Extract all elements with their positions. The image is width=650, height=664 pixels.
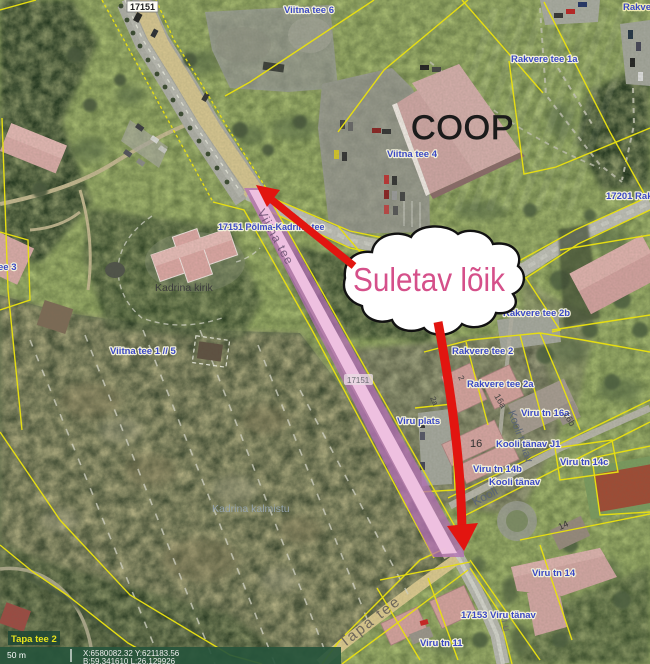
svg-text:Tapa tee 2: Tapa tee 2 <box>11 634 57 645</box>
svg-text:Viru tn 14b: Viru tn 14b <box>473 464 522 475</box>
svg-text:Viru tn 14c: Viru tn 14c <box>560 457 608 468</box>
svg-text:Viru tn 14: Viru tn 14 <box>532 568 576 579</box>
svg-text:Rakvere t: Rakvere t <box>623 2 650 13</box>
svg-text:Kadrina kalmistu: Kadrina kalmistu <box>212 503 290 515</box>
svg-text:Viitna tee 4: Viitna tee 4 <box>387 149 438 160</box>
svg-text:Viru tn 11: Viru tn 11 <box>420 638 463 649</box>
svg-text:B:59.341610 L:26.129926: B:59.341610 L:26.129926 <box>83 657 176 664</box>
svg-text:16: 16 <box>470 438 482 450</box>
svg-text:Viru plats: Viru plats <box>397 416 440 427</box>
svg-text:17151: 17151 <box>347 376 370 385</box>
svg-text:ee 3: ee 3 <box>0 262 17 273</box>
svg-text:17151: 17151 <box>130 2 155 12</box>
svg-text:Viitna tee 6: Viitna tee 6 <box>284 5 334 16</box>
svg-text:Kooli tänav J1: Kooli tänav J1 <box>496 439 561 450</box>
svg-text:Kooli tänav: Kooli tänav <box>489 477 541 488</box>
svg-text:17153 Viru tänav: 17153 Viru tänav <box>461 610 537 621</box>
svg-text:Rakvere tee 2: Rakvere tee 2 <box>452 346 513 357</box>
svg-text:COOP: COOP <box>411 109 514 147</box>
svg-text:Kadrina kirik: Kadrina kirik <box>155 282 214 294</box>
svg-text:50 m: 50 m <box>7 650 26 660</box>
svg-text:17201 Rakv: 17201 Rakv <box>606 191 650 202</box>
svg-text:Rakvere tee 2a: Rakvere tee 2a <box>467 379 534 390</box>
svg-text:Viitna tee 1 // 5: Viitna tee 1 // 5 <box>110 346 177 357</box>
svg-text:Rakvere tee 1a: Rakvere tee 1a <box>511 54 578 65</box>
svg-text:Suletav lõik: Suletav lõik <box>353 261 505 298</box>
